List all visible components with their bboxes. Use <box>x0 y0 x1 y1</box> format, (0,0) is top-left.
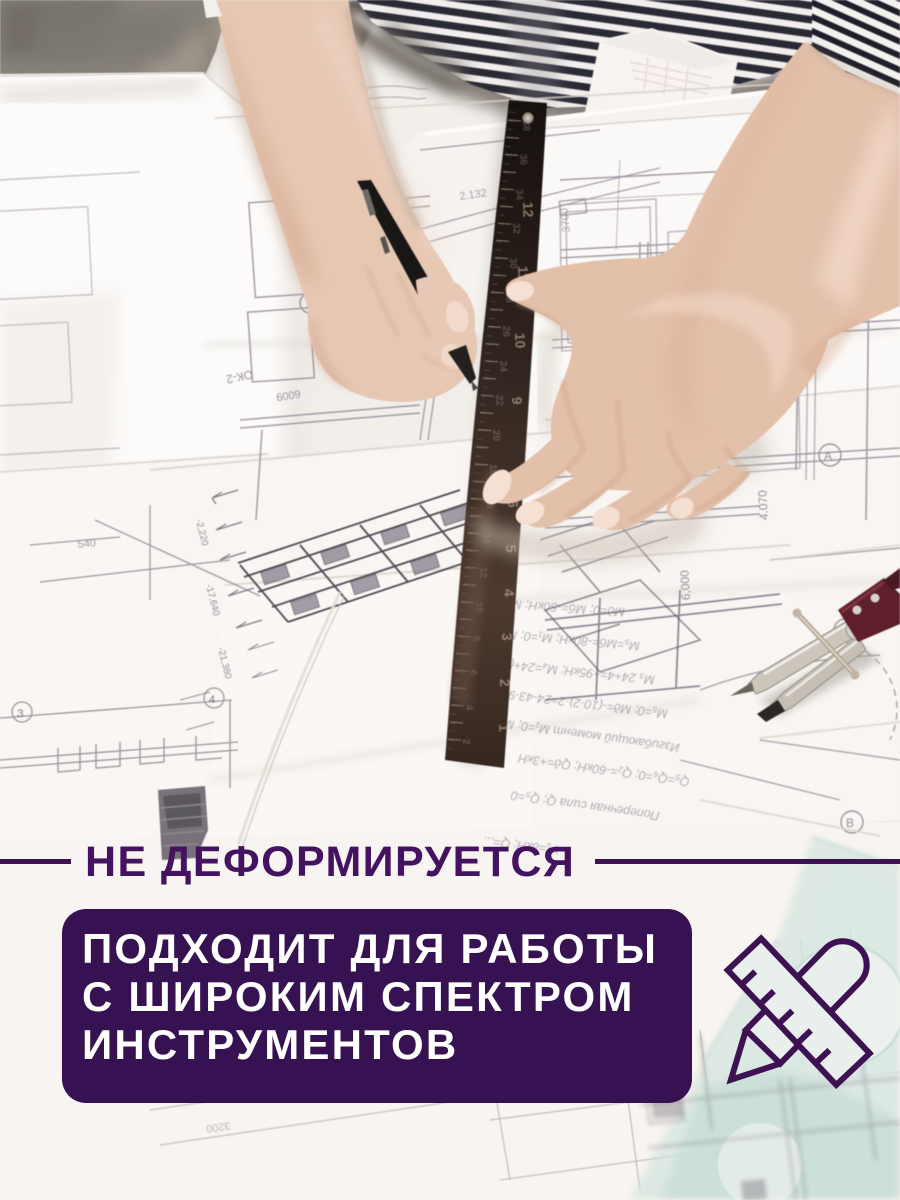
svg-text:A: A <box>824 449 832 463</box>
svg-text:2: 2 <box>497 679 513 688</box>
svg-text:4.070: 4.070 <box>755 490 771 521</box>
svg-text:22: 22 <box>493 395 504 407</box>
svg-text:24: 24 <box>497 361 508 373</box>
svg-text:34: 34 <box>513 189 524 201</box>
svg-text:З: З <box>17 708 24 720</box>
svg-text:4: 4 <box>501 589 517 598</box>
svg-text:36: 36 <box>517 154 528 166</box>
svg-text:38: 38 <box>520 120 531 132</box>
svg-text:9: 9 <box>509 397 525 406</box>
svg-text:1: 1 <box>496 724 512 733</box>
svg-text:3700: 3700 <box>558 207 572 233</box>
svg-text:540: 540 <box>77 537 97 551</box>
svg-text:В: В <box>846 816 854 830</box>
svg-text:20: 20 <box>490 430 501 442</box>
svg-text:26: 26 <box>500 326 511 338</box>
svg-text:4: 4 <box>209 694 215 706</box>
svg-text:32: 32 <box>510 223 521 235</box>
svg-text:12: 12 <box>520 202 537 218</box>
svg-text:2: 2 <box>460 739 471 745</box>
svg-text:3: 3 <box>499 633 515 642</box>
svg-text:10: 10 <box>512 333 529 349</box>
